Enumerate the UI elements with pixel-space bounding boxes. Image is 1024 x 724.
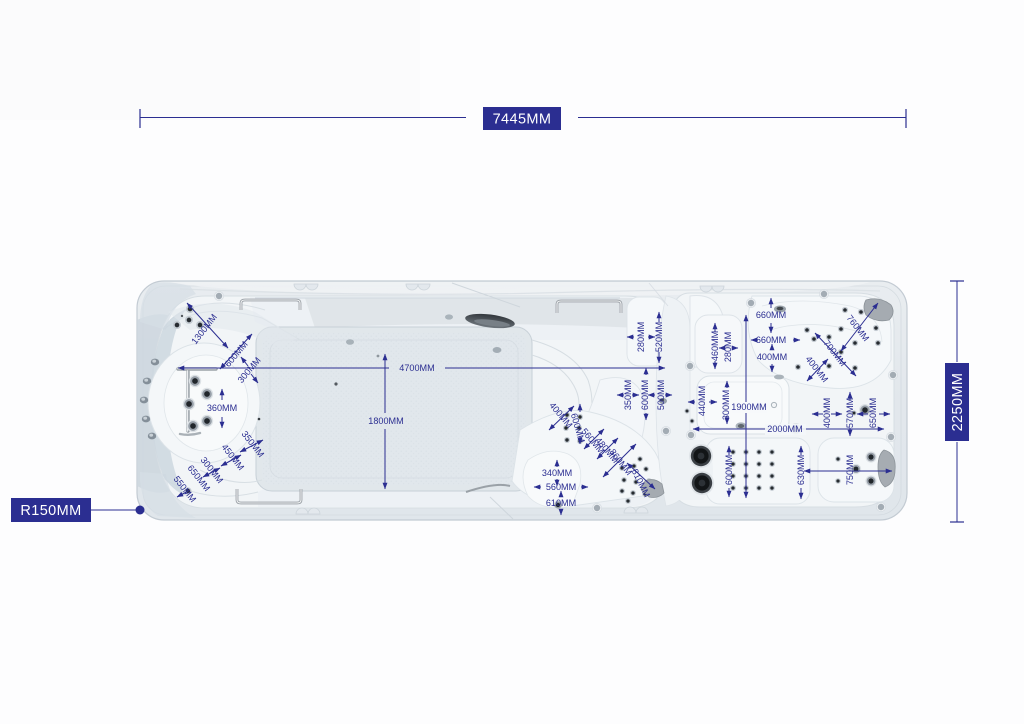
svg-text:4700MM: 4700MM bbox=[399, 363, 434, 373]
svg-text:300MM: 300MM bbox=[721, 390, 731, 420]
svg-text:440MM: 440MM bbox=[697, 386, 707, 416]
svg-text:750MM: 750MM bbox=[845, 455, 855, 485]
svg-text:280MM: 280MM bbox=[723, 332, 733, 362]
svg-text:460MM: 460MM bbox=[710, 331, 720, 361]
svg-text:360MM: 360MM bbox=[207, 403, 237, 413]
svg-text:1900MM: 1900MM bbox=[731, 402, 766, 412]
svg-text:1800MM: 1800MM bbox=[368, 416, 403, 426]
svg-text:660MM: 660MM bbox=[756, 310, 786, 320]
svg-text:350MM: 350MM bbox=[623, 380, 633, 410]
svg-text:500MM: 500MM bbox=[656, 380, 666, 410]
svg-text:400MM: 400MM bbox=[822, 398, 832, 428]
svg-text:340MM: 340MM bbox=[542, 468, 572, 478]
svg-text:280MM: 280MM bbox=[636, 322, 646, 352]
svg-text:630MM: 630MM bbox=[796, 455, 806, 485]
svg-text:600MM: 600MM bbox=[724, 455, 734, 485]
svg-text:560MM: 560MM bbox=[546, 482, 576, 492]
svg-text:2000MM: 2000MM bbox=[767, 424, 802, 434]
svg-text:R150MM: R150MM bbox=[20, 503, 81, 519]
svg-text:7445MM: 7445MM bbox=[493, 112, 552, 128]
svg-text:660MM: 660MM bbox=[756, 335, 786, 345]
svg-text:610MM: 610MM bbox=[546, 498, 576, 508]
svg-text:400MM: 400MM bbox=[757, 352, 787, 362]
svg-text:2250MM: 2250MM bbox=[950, 373, 966, 432]
svg-text:520MM: 520MM bbox=[654, 322, 664, 352]
svg-text:650MM: 650MM bbox=[868, 398, 878, 428]
svg-text:570MM: 570MM bbox=[845, 398, 855, 428]
